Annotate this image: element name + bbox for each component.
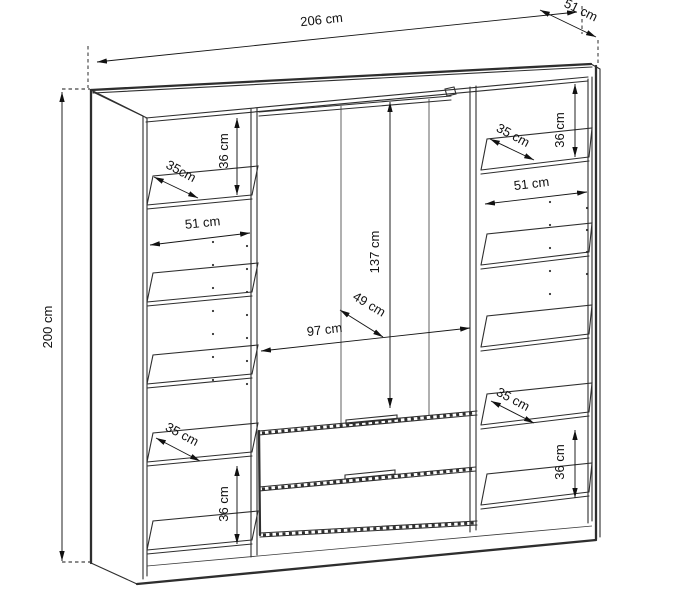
- left-shelf-3: [147, 345, 258, 388]
- overall-height-label: 200 cm: [40, 306, 55, 349]
- right-bottom-shelf-depth-label: 35 cm: [494, 384, 532, 414]
- dim-line-right-width: [485, 192, 587, 204]
- drawer-unit: [259, 411, 477, 537]
- left-shelf-1: [147, 166, 258, 209]
- overall-width-label: 206 cm: [300, 10, 344, 29]
- right-bottom-gap-label: 36 cm: [552, 444, 567, 479]
- dim-line-left-width: [150, 233, 250, 245]
- left-bottom-gap-label: 36 cm: [216, 486, 231, 521]
- center-width-label: 97 cm: [306, 320, 343, 339]
- hanging-rail: [259, 87, 456, 116]
- left-shelf-2: [147, 263, 258, 306]
- rail-height-label: 137 cm: [367, 231, 382, 274]
- overall-depth-label: 51 cm: [562, 0, 600, 24]
- left-top-gap-label: 36 cm: [216, 133, 231, 168]
- right-width-label: 51 cm: [513, 174, 550, 193]
- rail-bracket: [445, 87, 456, 96]
- right-top-gap-label: 36 cm: [552, 112, 567, 147]
- left-top-shelf-depth-label: 35cm: [164, 157, 199, 185]
- wardrobe-diagram: 206 cm 51 cm 200 cm 36 cm 35cm 51 cm 35 …: [0, 0, 691, 599]
- wardrobe-dimension-diagram-page: 206 cm 51 cm 200 cm 36 cm 35cm 51 cm 35 …: [0, 0, 691, 599]
- partitions: [251, 86, 476, 557]
- center-section: [259, 87, 456, 428]
- right-top-shelf-depth-label: 35 cm: [494, 120, 532, 150]
- right-shelf-3: [481, 305, 592, 351]
- right-shelf-2: [481, 223, 592, 269]
- rail-depth-label: 49 cm: [350, 289, 388, 320]
- shelf-pin-holes: [212, 201, 588, 385]
- dim-line-center-width: [261, 328, 470, 351]
- left-width-label: 51 cm: [184, 213, 221, 232]
- dimension-lines: [62, 6, 598, 562]
- left-bottom-panel: [147, 511, 258, 554]
